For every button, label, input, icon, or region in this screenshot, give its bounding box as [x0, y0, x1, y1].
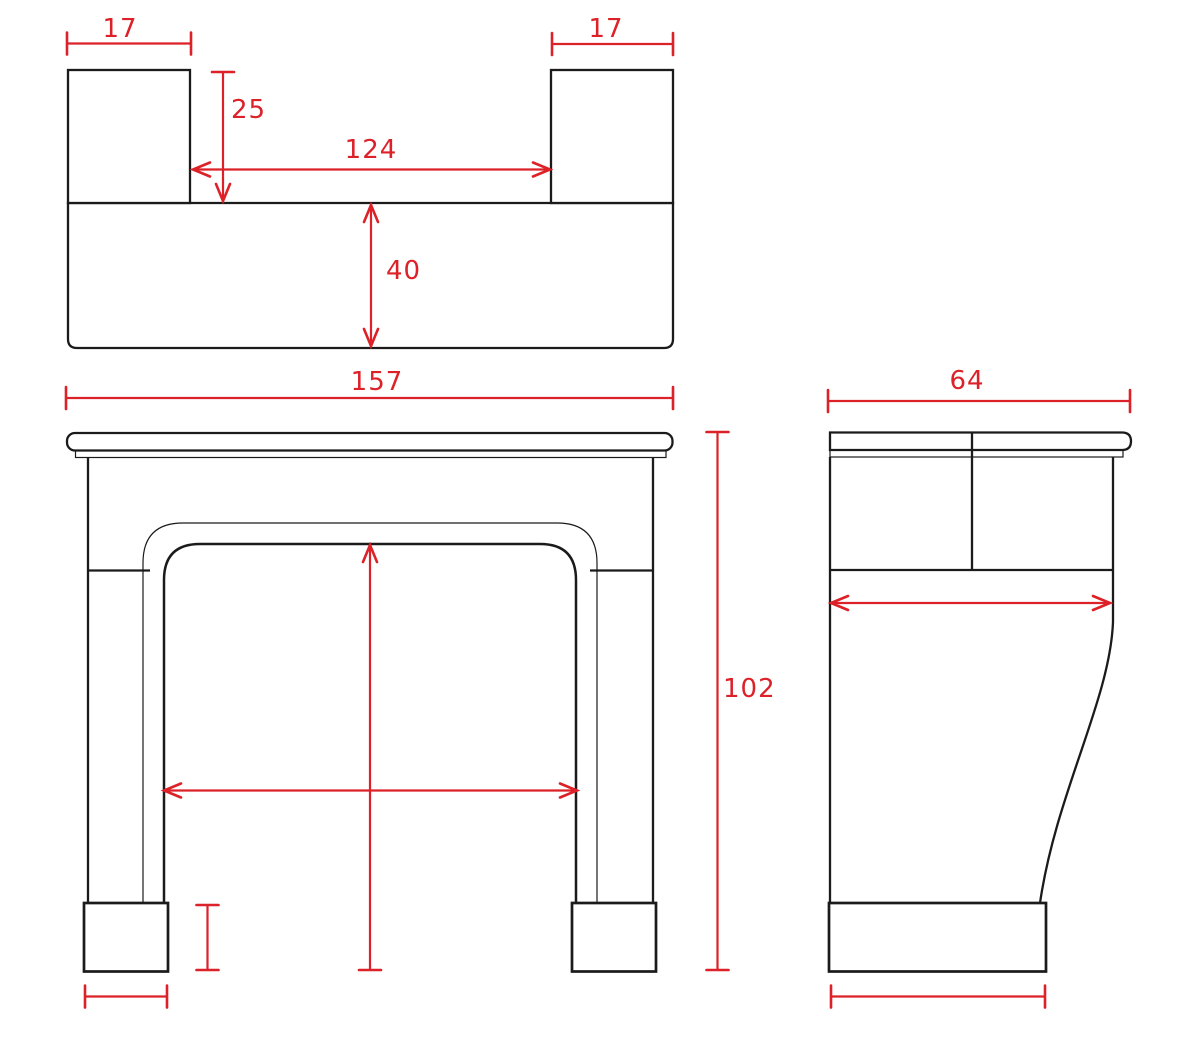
- dim-top-right-block-width: 17: [552, 14, 673, 55]
- dim-front-opening-height: [359, 545, 381, 970]
- dim-side-overall-depth-label: 64: [949, 366, 984, 396]
- drawing-page: 1717251244015710264: [0, 0, 1200, 1050]
- side-view: [829, 433, 1131, 972]
- dim-top-between-blocks: 124: [193, 135, 550, 177]
- dim-top-block-depth-label: 25: [231, 95, 266, 125]
- plan-right-block: [551, 70, 673, 203]
- dim-front-foot-height: [197, 905, 219, 970]
- side-shelf: [830, 433, 1131, 451]
- front-left-foot: [84, 903, 168, 972]
- front-right-foot: [572, 903, 656, 972]
- dim-side-overall-depth: 64: [828, 366, 1130, 412]
- front-shelf: [67, 433, 673, 451]
- dim-top-bar-depth-label: 40: [386, 256, 421, 286]
- dim-top-left-block-width-label: 17: [102, 14, 137, 44]
- dim-front-overall-width: 157: [66, 367, 673, 409]
- dim-side-shelf-projection: [831, 596, 1110, 610]
- dim-top-between-blocks-label: 124: [345, 135, 398, 165]
- dim-top-right-block-width-label: 17: [588, 14, 623, 44]
- dim-front-overall-height-label: 102: [723, 674, 776, 704]
- plan-left-block: [68, 70, 190, 203]
- dim-top-left-block-width: 17: [67, 14, 191, 55]
- side-foot: [829, 903, 1046, 972]
- dim-side-foot-depth: [831, 986, 1045, 1008]
- dim-front-foot-width: [85, 986, 167, 1008]
- technical-drawing-canvas: 1717251244015710264: [0, 0, 1200, 1050]
- dim-front-overall-height: 102: [707, 432, 776, 970]
- dim-top-block-depth: 25: [212, 72, 266, 201]
- dim-front-overall-width-label: 157: [351, 367, 404, 397]
